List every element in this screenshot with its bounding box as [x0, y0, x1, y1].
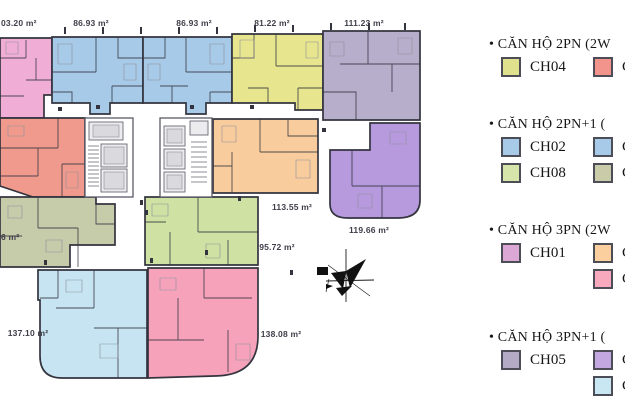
legend-swatch — [593, 243, 613, 263]
legend: • CĂN HỘ 2PN (2W CH04 C • CĂN HỘ 2PN+1 (… — [483, 0, 625, 420]
legend-section-title: • CĂN HỘ 2PN (2W — [489, 36, 625, 54]
unit-113 — [213, 119, 318, 193]
north-arrow-compass — [317, 249, 374, 302]
area-label: 137.10 m² — [8, 328, 49, 338]
legend-section-title: • CĂN HỘ 3PN+1 ( — [489, 329, 625, 347]
area-label: 113.55 m² — [272, 202, 312, 212]
legend-row: CH08 C — [483, 160, 625, 186]
legend-swatch — [593, 137, 613, 157]
unit-86a — [52, 37, 143, 114]
legend-swatch — [593, 350, 613, 370]
legend-row: CH05 C — [483, 347, 625, 373]
legend-section-title: • CĂN HỘ 3PN (2W — [489, 222, 625, 240]
legend-swatch — [501, 243, 521, 263]
area-label: 81.22 m² — [254, 18, 290, 28]
legend-swatch — [501, 137, 521, 157]
apartment-units — [0, 31, 420, 378]
unit-salmon — [0, 118, 85, 197]
legend-swatch — [501, 57, 521, 77]
legend-swatch — [593, 269, 613, 289]
area-label: 86.93 m² — [176, 18, 212, 28]
unit-code: CH05 — [530, 352, 582, 369]
unit-137 — [38, 270, 147, 378]
area-label: 138.08 m² — [261, 329, 302, 339]
area-label: 03.20 m² — [1, 18, 37, 28]
unit-code: CH04 — [530, 59, 582, 76]
area-label: 111.23 m² — [344, 18, 384, 28]
floorplan-drawing: 03.20 m² 86.93 m² 86.93 m² 81.22 m² 111.… — [0, 0, 478, 420]
legend-swatch — [593, 57, 613, 77]
legend-section-3pn: • CĂN HỘ 3PN (2W CH01 C C — [483, 222, 625, 292]
floorplan-screenshot: 03.20 m² 86.93 m² 86.93 m² 81.22 m² 111.… — [0, 0, 625, 420]
legend-section-3pn1: • CĂN HỘ 3PN+1 ( CH05 C C — [483, 329, 625, 399]
elevator-core — [85, 118, 212, 197]
legend-row: C — [483, 373, 625, 399]
area-label: 86.93 m² — [73, 18, 109, 28]
unit-86b — [143, 37, 232, 114]
unit-code: CH02 — [530, 139, 582, 156]
legend-row: CH04 C — [483, 54, 625, 80]
unit-111 — [323, 31, 420, 120]
unit-119 — [330, 123, 420, 218]
legend-swatch — [593, 163, 613, 183]
unit-code: CH01 — [530, 245, 582, 262]
compass-label — [317, 267, 328, 275]
legend-swatch — [501, 163, 521, 183]
legend-row: C — [483, 266, 625, 292]
legend-section-2pn1: • CĂN HỘ 2PN+1 ( CH02 C CH08 C — [483, 116, 625, 186]
legend-section-2pn: • CĂN HỘ 2PN (2W CH04 C — [483, 36, 625, 80]
unit-95 — [145, 197, 258, 265]
unit-138 — [148, 268, 258, 378]
legend-section-title: • CĂN HỘ 2PN+1 ( — [489, 116, 625, 134]
legend-swatch — [593, 376, 613, 396]
unit-code: CH08 — [530, 165, 582, 182]
unit-81 — [232, 34, 323, 110]
area-label: 119.66 m² — [349, 225, 389, 235]
legend-swatch — [501, 350, 521, 370]
legend-row: CH01 C — [483, 240, 625, 266]
legend-row: CH02 C — [483, 134, 625, 160]
area-label: 6 m² — [1, 232, 19, 242]
area-label: 95.72 m² — [259, 242, 295, 252]
